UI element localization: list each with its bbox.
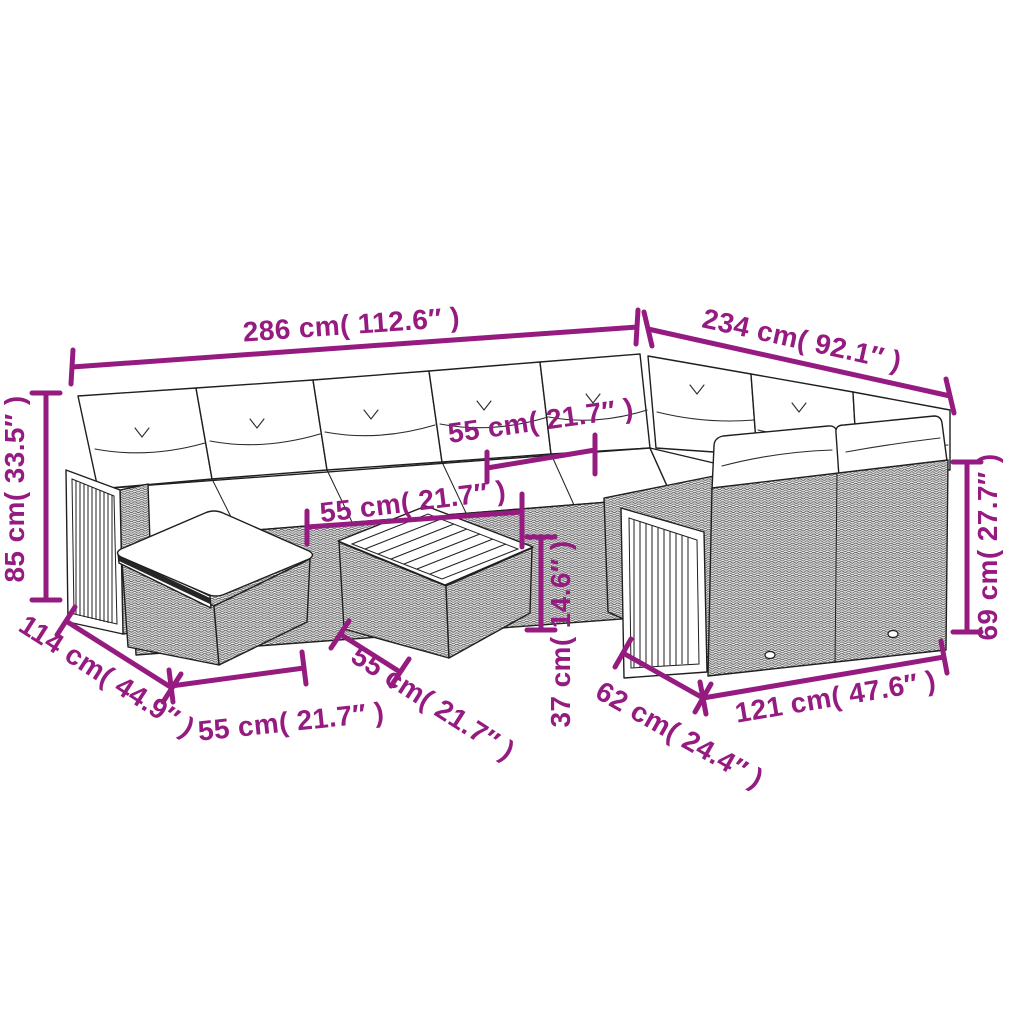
dim-label-back-height: 85 cm( 33.5″ ): [0, 395, 30, 582]
dimension-back-height: 85 cm( 33.5″ ): [0, 393, 60, 600]
dim-label-stool-width: 55 cm( 21.7″ ): [196, 696, 385, 746]
end-sofa-slat-panel: [621, 508, 707, 678]
dim-label-seat-height: 37 cm( 14.6″ ): [545, 540, 576, 727]
dimension-end-back-height: 69 cm( 27.7″ ): [953, 453, 1003, 640]
furniture-illustration: [66, 354, 950, 678]
lounge-set-diagram: 286 cm( 112.6″ ) 234 cm( 92.1″ ) 85 cm( …: [0, 0, 1024, 1024]
dimension-diagram-canvas: 286 cm( 112.6″ ) 234 cm( 92.1″ ) 85 cm( …: [0, 0, 1024, 1024]
dim-label-end-back-height: 69 cm( 27.7″ ): [972, 453, 1003, 640]
